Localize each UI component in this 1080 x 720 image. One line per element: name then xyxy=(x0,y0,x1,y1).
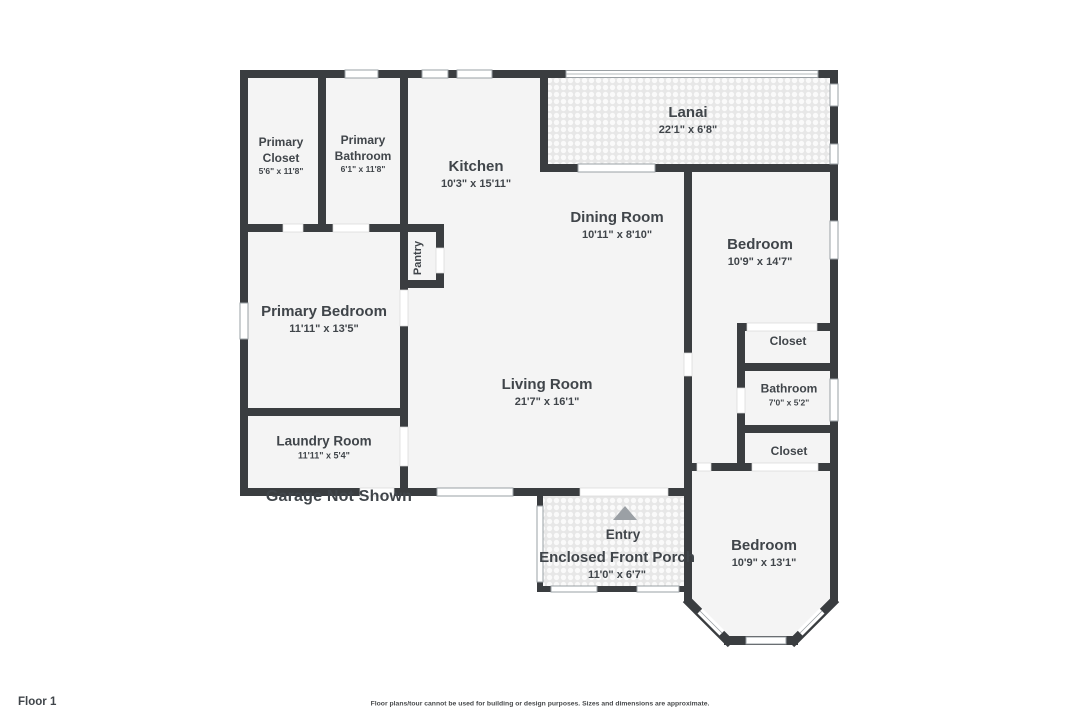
room-label-pantry: Pantry xyxy=(412,241,424,275)
room-label-living-room: Living Room 21'7" x 16'1" xyxy=(502,375,593,409)
floor-plan-svg xyxy=(0,0,1080,720)
disclaimer-text: Floor plans/tour cannot be used for buil… xyxy=(371,701,710,708)
floor-label: Floor 1 xyxy=(18,696,56,708)
room-label-porch: Enclosed Front Porch 11'0" x 6'7" xyxy=(539,548,695,582)
room-label-primary-closet: Primary Closet 5'6" x 11'8" xyxy=(246,135,316,177)
room-label-closet-bottom: Closet xyxy=(771,444,808,460)
room-label-bedroom-bottom: Bedroom 10'9" x 13'1" xyxy=(731,536,797,570)
room-label-bathroom: Bathroom 7'0" x 5'2" xyxy=(761,382,818,409)
room-label-dining-room: Dining Room 10'11" x 8'10" xyxy=(570,208,663,242)
room-label-kitchen: Kitchen 10'3" x 15'11" xyxy=(441,157,511,191)
garage-note: Garage Not Shown xyxy=(266,488,412,506)
room-label-primary-bathroom: Primary Bathroom 6'1" x 11'8" xyxy=(323,133,403,175)
room-label-laundry-room: Laundry Room 11'11" x 5'4" xyxy=(276,432,371,461)
room-label-closet-top: Closet xyxy=(770,334,807,350)
room-label-lanai: Lanai 22'1" x 6'8" xyxy=(659,103,717,137)
floor-plan: Lanai 22'1" x 6'8" Kitchen 10'3" x 15'11… xyxy=(0,0,1080,720)
room-label-bedroom-top: Bedroom 10'9" x 14'7" xyxy=(727,235,793,269)
room-label-primary-bedroom: Primary Bedroom 11'11" x 13'5" xyxy=(261,302,387,336)
room-label-entry: Entry xyxy=(606,526,641,544)
